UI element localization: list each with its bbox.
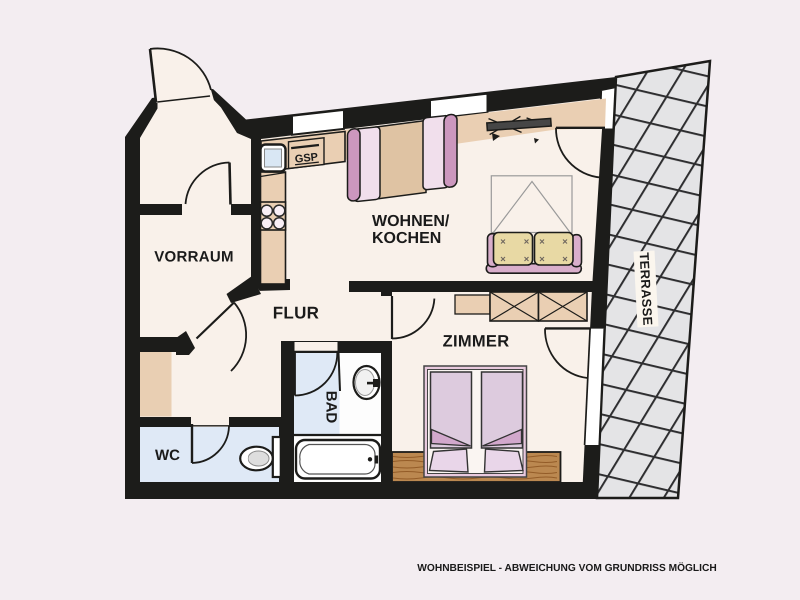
svg-text:WOHNEN/: WOHNEN/ (372, 213, 450, 230)
svg-text:KOCHEN: KOCHEN (372, 230, 441, 247)
svg-text:ZIMMER: ZIMMER (443, 333, 510, 351)
svg-text:WC: WC (155, 447, 180, 464)
svg-text:FLUR: FLUR (273, 304, 320, 323)
svg-text:BAD: BAD (323, 391, 340, 424)
svg-text:WOHNBEISPIEL - ABWEICHUNG VOM: WOHNBEISPIEL - ABWEICHUNG VOM GRUNDRISS … (417, 562, 716, 574)
svg-text:VORRAUM: VORRAUM (154, 249, 234, 266)
